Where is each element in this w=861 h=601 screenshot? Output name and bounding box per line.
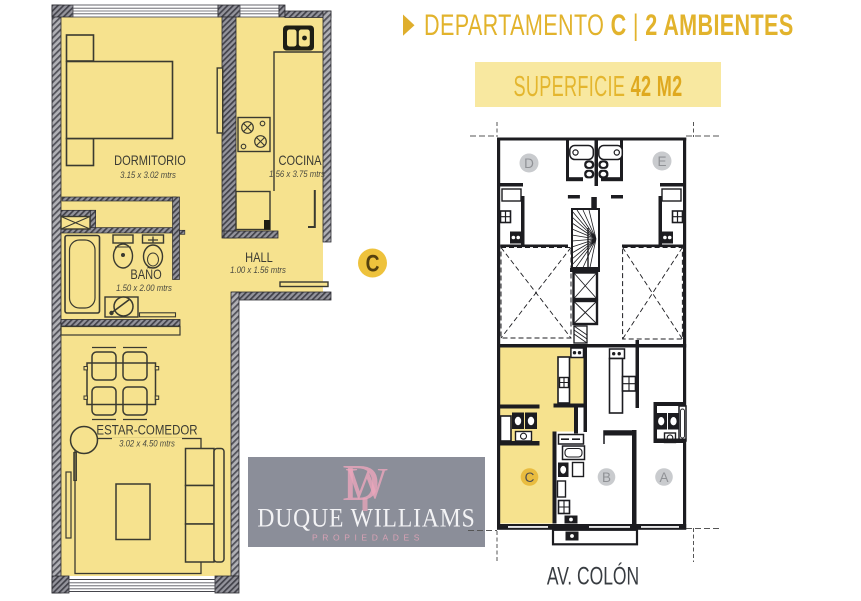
svg-text:C: C bbox=[525, 470, 535, 485]
svg-text:A: A bbox=[659, 470, 668, 485]
svg-text:HALL: HALL bbox=[245, 250, 273, 265]
svg-text:1.50 x 2.00 mtrs: 1.50 x 2.00 mtrs bbox=[116, 282, 172, 293]
svg-text:E: E bbox=[657, 154, 666, 169]
svg-text:C: C bbox=[366, 249, 380, 277]
svg-text:3.15 x 3.02 mtrs: 3.15 x 3.02 mtrs bbox=[120, 169, 176, 180]
svg-text:SUPERFICIE 42 M2: SUPERFICIE 42 M2 bbox=[513, 71, 682, 103]
svg-text:COCINA: COCINA bbox=[278, 153, 322, 168]
svg-text:AV. COLÓN: AV. COLÓN bbox=[547, 561, 639, 590]
svg-text:DORMITORIO: DORMITORIO bbox=[114, 153, 186, 168]
svg-text:DUQUE WILLIAMS: DUQUE WILLIAMS bbox=[257, 504, 475, 533]
svg-text:ESTAR-COMEDOR: ESTAR-COMEDOR bbox=[96, 421, 197, 437]
svg-text:1.56 x 3.75 mtrs: 1.56 x 3.75 mtrs bbox=[269, 168, 325, 179]
svg-text:D: D bbox=[524, 156, 534, 171]
svg-text:DEPARTAMENTO C | 2 AMBIENTES: DEPARTAMENTO C | 2 AMBIENTES bbox=[424, 7, 794, 41]
svg-text:1.00 x 1.56 mtrs: 1.00 x 1.56 mtrs bbox=[230, 264, 286, 275]
svg-text:3.02 x 4.50 mtrs: 3.02 x 4.50 mtrs bbox=[119, 438, 175, 449]
svg-text:B: B bbox=[602, 470, 611, 485]
svg-text:BAÑO: BAÑO bbox=[130, 267, 161, 282]
svg-text:PROPIEDADES: PROPIEDADES bbox=[312, 533, 424, 543]
